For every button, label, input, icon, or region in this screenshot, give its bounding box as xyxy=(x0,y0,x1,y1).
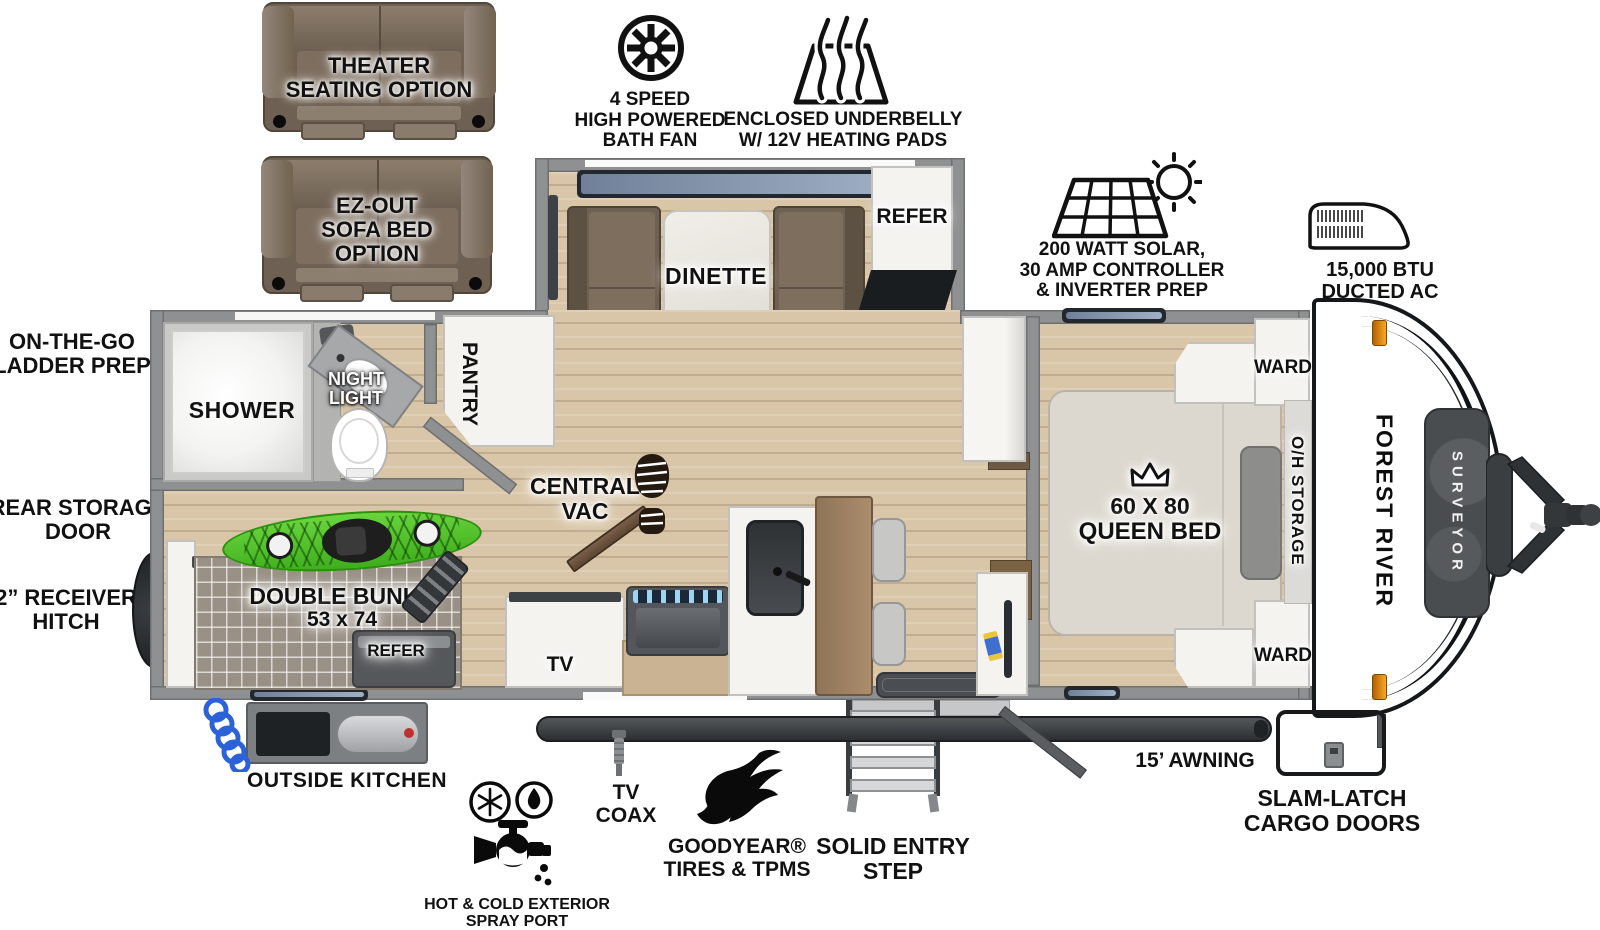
sofa-bolt xyxy=(469,277,482,290)
water-hose xyxy=(198,698,258,772)
bath-fan-icon xyxy=(615,12,687,84)
valve xyxy=(404,728,414,738)
label-line: 4 SPEED xyxy=(575,90,726,111)
goodyear-label: GOODYEAR® TIRES & TPMS xyxy=(663,836,810,881)
label-line: DOOR xyxy=(0,520,166,544)
label-line: 60 X 80 xyxy=(1079,494,1222,519)
label-line: ENCLOSED UNDERBELLY xyxy=(724,110,963,131)
door-emblem xyxy=(983,631,1003,662)
sofa-foot xyxy=(390,284,454,302)
spray-port-label: HOT & COLD EXTERIOR SPRAY PORT xyxy=(424,896,610,930)
ducted-ac-label: 15,000 BTU DUCTED AC xyxy=(1321,260,1438,303)
door-handle xyxy=(1004,600,1012,678)
theater-seating-option: THEATER SEATING OPTION xyxy=(263,2,495,132)
sofa-bolt xyxy=(472,115,485,128)
wall-rear xyxy=(150,310,164,700)
tv-coax-label: TV COAX xyxy=(596,782,657,827)
bar-stool xyxy=(872,602,906,666)
label-line: THEATER xyxy=(263,54,495,78)
queen-bed-label: 60 X 80 QUEEN BED xyxy=(1079,494,1222,545)
label-line: STEP xyxy=(816,859,970,884)
outdoor-grill xyxy=(256,712,330,756)
bed-pillow xyxy=(1240,446,1282,580)
marker-light-bottom xyxy=(1372,674,1387,700)
label-line: COAX xyxy=(596,805,657,828)
boot-print-icon xyxy=(630,452,674,536)
sofa-front-edge xyxy=(296,268,458,282)
label-line: QUEEN BED xyxy=(1079,519,1222,545)
label-line: REAR STORAGE xyxy=(0,496,166,520)
slide-wall xyxy=(951,158,965,315)
label-line: CARGO DOORS xyxy=(1244,811,1420,836)
nightstand-rear xyxy=(1174,628,1254,688)
label-line: VAC xyxy=(530,499,640,524)
marker-light-top xyxy=(1372,320,1387,346)
hitch-assembly xyxy=(1486,448,1600,582)
sofa-bolt xyxy=(272,277,285,290)
label-line: BATH FAN xyxy=(575,131,726,152)
wardrobe-rear xyxy=(1254,600,1310,688)
label-line: HIGH POWERED xyxy=(575,111,726,132)
sofa-foot xyxy=(300,284,364,302)
entry-step-label: SOLID ENTRY STEP xyxy=(816,834,970,884)
dinette-slide-out xyxy=(535,158,965,315)
label-line: OPTION xyxy=(262,242,492,266)
pantry-label: PANTRY xyxy=(452,328,486,440)
label-line: LIGHT xyxy=(328,389,384,408)
bathroom-side-wall xyxy=(424,324,437,404)
wall-window-band xyxy=(235,312,435,320)
crown-icon xyxy=(1127,460,1173,490)
goodyear-wingfoot-icon xyxy=(693,748,793,834)
label-line: SOLID ENTRY xyxy=(816,834,970,859)
label-line: TV xyxy=(596,782,657,805)
bunk-refer-label: REFER xyxy=(367,642,425,660)
slide-trim xyxy=(585,160,915,167)
ward-rear-label: WARD xyxy=(1254,646,1312,667)
underbelly-label: ENCLOSED UNDERBELLY W/ 12V HEATING PADS xyxy=(724,110,963,151)
tv-screen xyxy=(509,592,621,602)
heating-pads-icon xyxy=(778,4,904,110)
rear-storage-label: REAR STORAGE DOOR xyxy=(0,496,166,544)
ladder-prep-label: ON-THE-GO LADDER PREP xyxy=(0,330,151,378)
label-line: SOFA BED xyxy=(262,218,492,242)
dinette-label: DINETTE xyxy=(665,264,767,289)
nightstand-front xyxy=(1174,342,1258,404)
dinette-window xyxy=(577,170,897,198)
forest-river-logo: FOREST RIVER xyxy=(1366,396,1402,626)
label-line: EZ-OUT xyxy=(262,194,492,218)
tv-label: TV xyxy=(547,654,574,677)
ez-out-sofa-bed-option: EZ-OUT SOFA BED OPTION xyxy=(262,156,492,294)
bath-fan-label: 4 SPEED HIGH POWERED BATH FAN xyxy=(575,90,726,152)
toilet xyxy=(330,408,388,482)
receiver-hitch-label: 2” RECEIVER HITCH xyxy=(0,586,137,634)
closet xyxy=(962,316,1026,462)
label-line: HITCH xyxy=(0,610,137,634)
label-line: HOT & COLD EXTERIOR xyxy=(424,896,610,913)
theater-seating-label: THEATER SEATING OPTION xyxy=(263,54,495,102)
entry-steps xyxy=(846,700,940,800)
label-line: 2” RECEIVER xyxy=(0,586,137,610)
solar-panel-icon xyxy=(1052,146,1202,242)
bedroom-window-top xyxy=(1062,308,1166,323)
central-vac-label: CENTRAL VAC xyxy=(530,474,640,524)
slide-wall xyxy=(535,158,549,315)
slide-window xyxy=(548,195,558,300)
cargo-door-outline xyxy=(1276,710,1386,776)
oh-storage-label: O/H STORAGE xyxy=(1283,402,1311,600)
label-line: & INVERTER PREP xyxy=(1020,281,1225,302)
awning-label: 15’ AWNING xyxy=(1135,750,1254,773)
cargo-doors-label: SLAM-LATCH CARGO DOORS xyxy=(1244,786,1420,836)
kitchen-sink xyxy=(746,520,804,616)
label-line: 15,000 BTU xyxy=(1321,260,1438,282)
bar-stool xyxy=(872,518,906,582)
label-line: SPRAY PORT xyxy=(424,913,610,930)
label-line: SLAM-LATCH xyxy=(1244,786,1420,811)
label-line: GOODYEAR® xyxy=(663,836,810,859)
label-line: CENTRAL xyxy=(530,474,640,499)
bedroom-partition-wall xyxy=(1026,316,1040,686)
surveyor-logo: SURVEYOR xyxy=(1430,418,1484,608)
sofa-bolt xyxy=(273,115,286,128)
outside-kitchen-label: OUTSIDE KITCHEN xyxy=(247,770,447,793)
solar-label: 200 WATT SOLAR, 30 AMP CONTROLLER & INVE… xyxy=(1020,240,1225,302)
entry-door-panel xyxy=(976,572,1028,696)
island-counter xyxy=(815,496,873,696)
label-line: SEATING OPTION xyxy=(263,78,495,102)
label-line: ON-THE-GO xyxy=(0,330,151,354)
ward-front-label: WARD xyxy=(1254,358,1312,379)
bedroom-window-bottom xyxy=(1064,686,1120,700)
sofa-foot xyxy=(393,122,457,140)
sofa-front-edge xyxy=(297,106,461,120)
awning-tube xyxy=(536,716,1272,742)
label-line: W/ 12V HEATING PADS xyxy=(724,131,963,152)
slam-latch xyxy=(1324,742,1344,768)
label-line: LADDER PREP xyxy=(0,354,151,378)
ac-unit-icon xyxy=(1302,196,1414,256)
night-light-label: NIGHT LIGHT xyxy=(328,370,384,409)
coax-connector-icon xyxy=(612,730,626,776)
outside-kitchen-unit xyxy=(246,702,428,764)
step-leg xyxy=(847,793,858,812)
step-leg xyxy=(928,793,939,812)
label-line: 200 WATT SOLAR, xyxy=(1020,240,1225,261)
sofa-foot xyxy=(301,122,365,140)
stove xyxy=(626,586,730,656)
refer-label: REFER xyxy=(876,206,947,229)
label-line: 30 AMP CONTROLLER xyxy=(1020,261,1225,282)
label-line: NIGHT xyxy=(328,370,384,389)
floorplan-canvas: THEATER SEATING OPTION EZ-OUT SOFA BED O… xyxy=(0,0,1600,930)
label-line: TIRES & TPMS xyxy=(663,859,810,882)
sofa-back-cushion xyxy=(271,6,487,50)
ez-out-sofa-label: EZ-OUT SOFA BED OPTION xyxy=(262,194,492,266)
spray-port-icon xyxy=(466,780,570,888)
shower-label: SHOWER xyxy=(189,398,296,423)
